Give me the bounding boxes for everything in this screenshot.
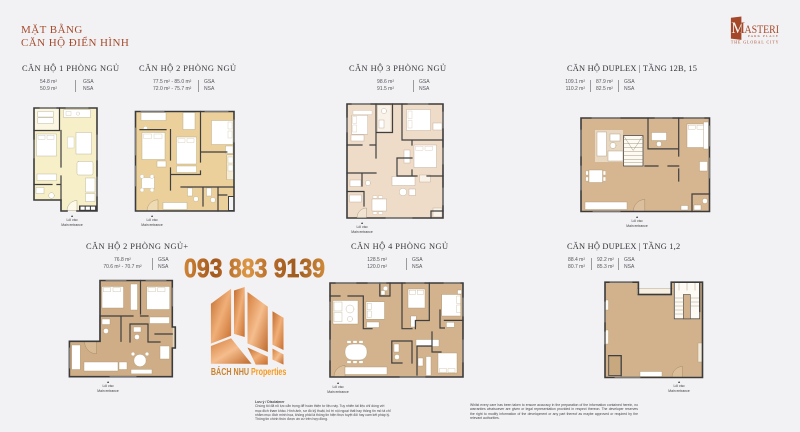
svg-text:093 883 9139: 093 883 9139 <box>184 253 325 282</box>
svg-text:THE GLOBAL CITY: THE GLOBAL CITY <box>731 41 779 45</box>
svg-text:PARK PLACE: PARK PLACE <box>748 34 778 38</box>
svg-text:BÁCH NHU Properties: BÁCH NHU Properties <box>211 365 287 378</box>
